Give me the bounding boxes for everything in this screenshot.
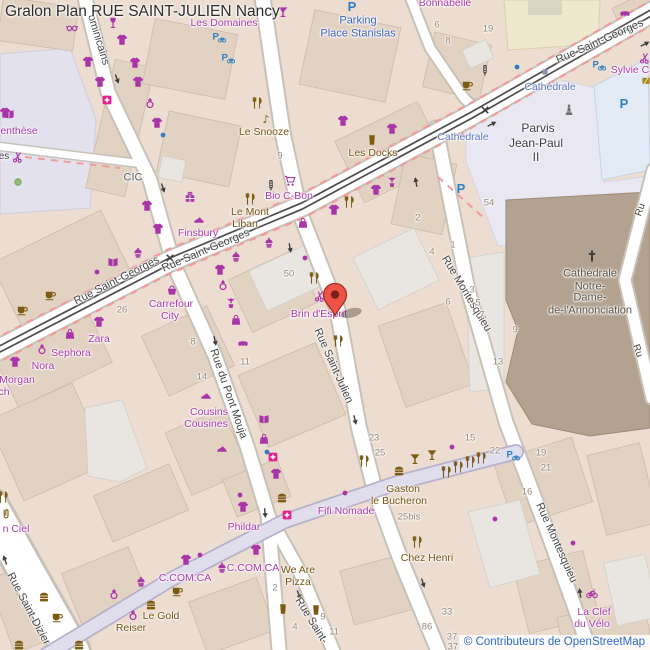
pharmacy-icon: [269, 453, 278, 462]
flower-icon: [227, 298, 235, 309]
bag-icon: [232, 315, 240, 324]
osm-attribution-link[interactable]: © Contributeurs de OpenStreetMap: [459, 635, 650, 650]
tshirt-icon: [329, 205, 339, 215]
pcar-icon: [348, 0, 357, 14]
fork-icon: [253, 98, 261, 109]
dot-icon: [265, 450, 270, 455]
marker-pin-hole: [331, 291, 339, 299]
tshirt-icon: [338, 116, 348, 126]
awning-icon: [620, 11, 629, 16]
marker-pin[interactable]: [324, 284, 347, 316]
burger-icon: [278, 494, 286, 503]
shoe-icon: [201, 393, 211, 398]
dot-icon: [161, 133, 166, 138]
fork-icon: [246, 194, 254, 205]
pcar-icon: [620, 96, 629, 111]
pharmacy-icon: [283, 511, 292, 520]
burger-icon: [15, 641, 23, 650]
burger-icon: [40, 593, 48, 602]
dot-icon: [198, 553, 203, 558]
tree-icon: [15, 179, 21, 185]
sweet-icon: [265, 238, 272, 248]
shoe-icon: [194, 217, 204, 222]
pharmacy-icon: [103, 96, 112, 105]
beer-icon: [369, 135, 375, 145]
pcar-icon: [457, 181, 466, 196]
awning-icon: [238, 341, 247, 346]
goldsq-icon: [642, 78, 649, 84]
burger-icon: [147, 601, 155, 610]
sweet-icon: [134, 248, 141, 258]
fork-icon: [413, 537, 421, 548]
pbike-icon: [593, 60, 606, 71]
sweet-icon: [232, 252, 239, 262]
cup-icon: [173, 588, 183, 597]
page-title: Gralon Plan RUE SAINT-JULIEN Nancy: [5, 3, 280, 21]
arrow-icon: [640, 39, 650, 48]
burger-icon: [395, 467, 403, 476]
burger-icon: [75, 641, 83, 650]
ring-icon: [220, 280, 226, 290]
music-icon: [262, 113, 269, 126]
dot-icon: [343, 491, 348, 496]
marker-shadow: [339, 306, 363, 320]
sq-icon: [542, 69, 547, 74]
sweet-icon: [218, 563, 225, 573]
dot-icon: [515, 65, 520, 70]
fork-icon: [345, 197, 353, 208]
dot-icon: [95, 270, 100, 275]
dot-icon: [493, 517, 498, 522]
tshirt-icon: [152, 118, 162, 128]
dot-icon: [303, 256, 308, 261]
beer-icon: [313, 605, 319, 615]
gift-icon: [186, 192, 194, 201]
parking-lot-area: [594, 58, 650, 180]
tshirt-icon: [94, 317, 104, 327]
cocktail-icon: [428, 450, 437, 460]
ring-icon: [147, 98, 153, 108]
beer-icon: [280, 604, 286, 614]
cocktail-icon: [411, 454, 420, 464]
light-icon: [269, 180, 272, 190]
map-canvas[interactable]: P P ♪: [0, 0, 650, 650]
location-marker[interactable]: [322, 282, 368, 325]
dot-icon: [238, 493, 243, 498]
tshirt-icon: [215, 265, 225, 275]
dot-icon: [450, 445, 455, 450]
tshirt-icon: [117, 35, 127, 45]
dot-icon: [571, 541, 576, 546]
